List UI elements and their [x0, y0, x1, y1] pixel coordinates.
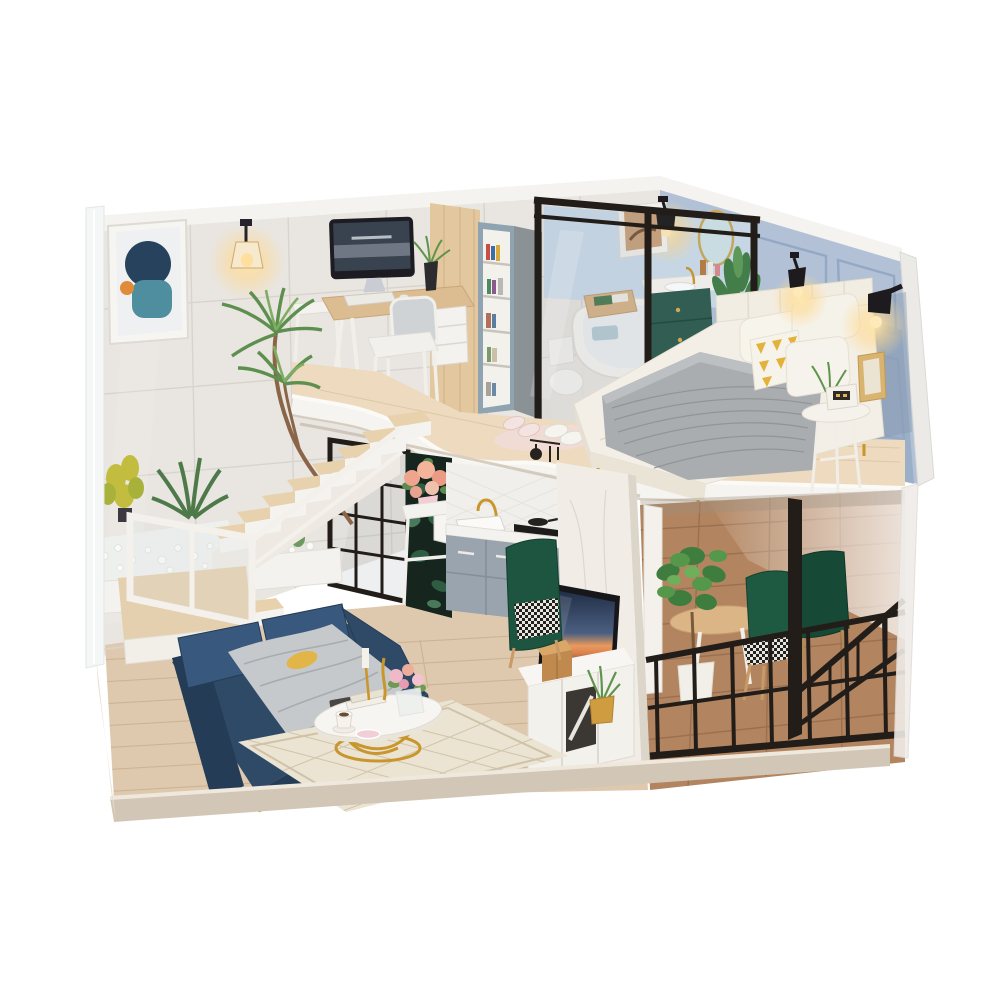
art-teal-blob: [132, 280, 172, 318]
dollhouse-illustration: [0, 0, 1000, 1000]
dessert-plate: [356, 730, 380, 739]
abstract-art-frame: [108, 220, 188, 344]
white-post: [644, 505, 662, 694]
product-photo-dollhouse: [0, 0, 1000, 1000]
alarm-clock: [826, 384, 858, 410]
art-orange-dot: [120, 281, 134, 295]
